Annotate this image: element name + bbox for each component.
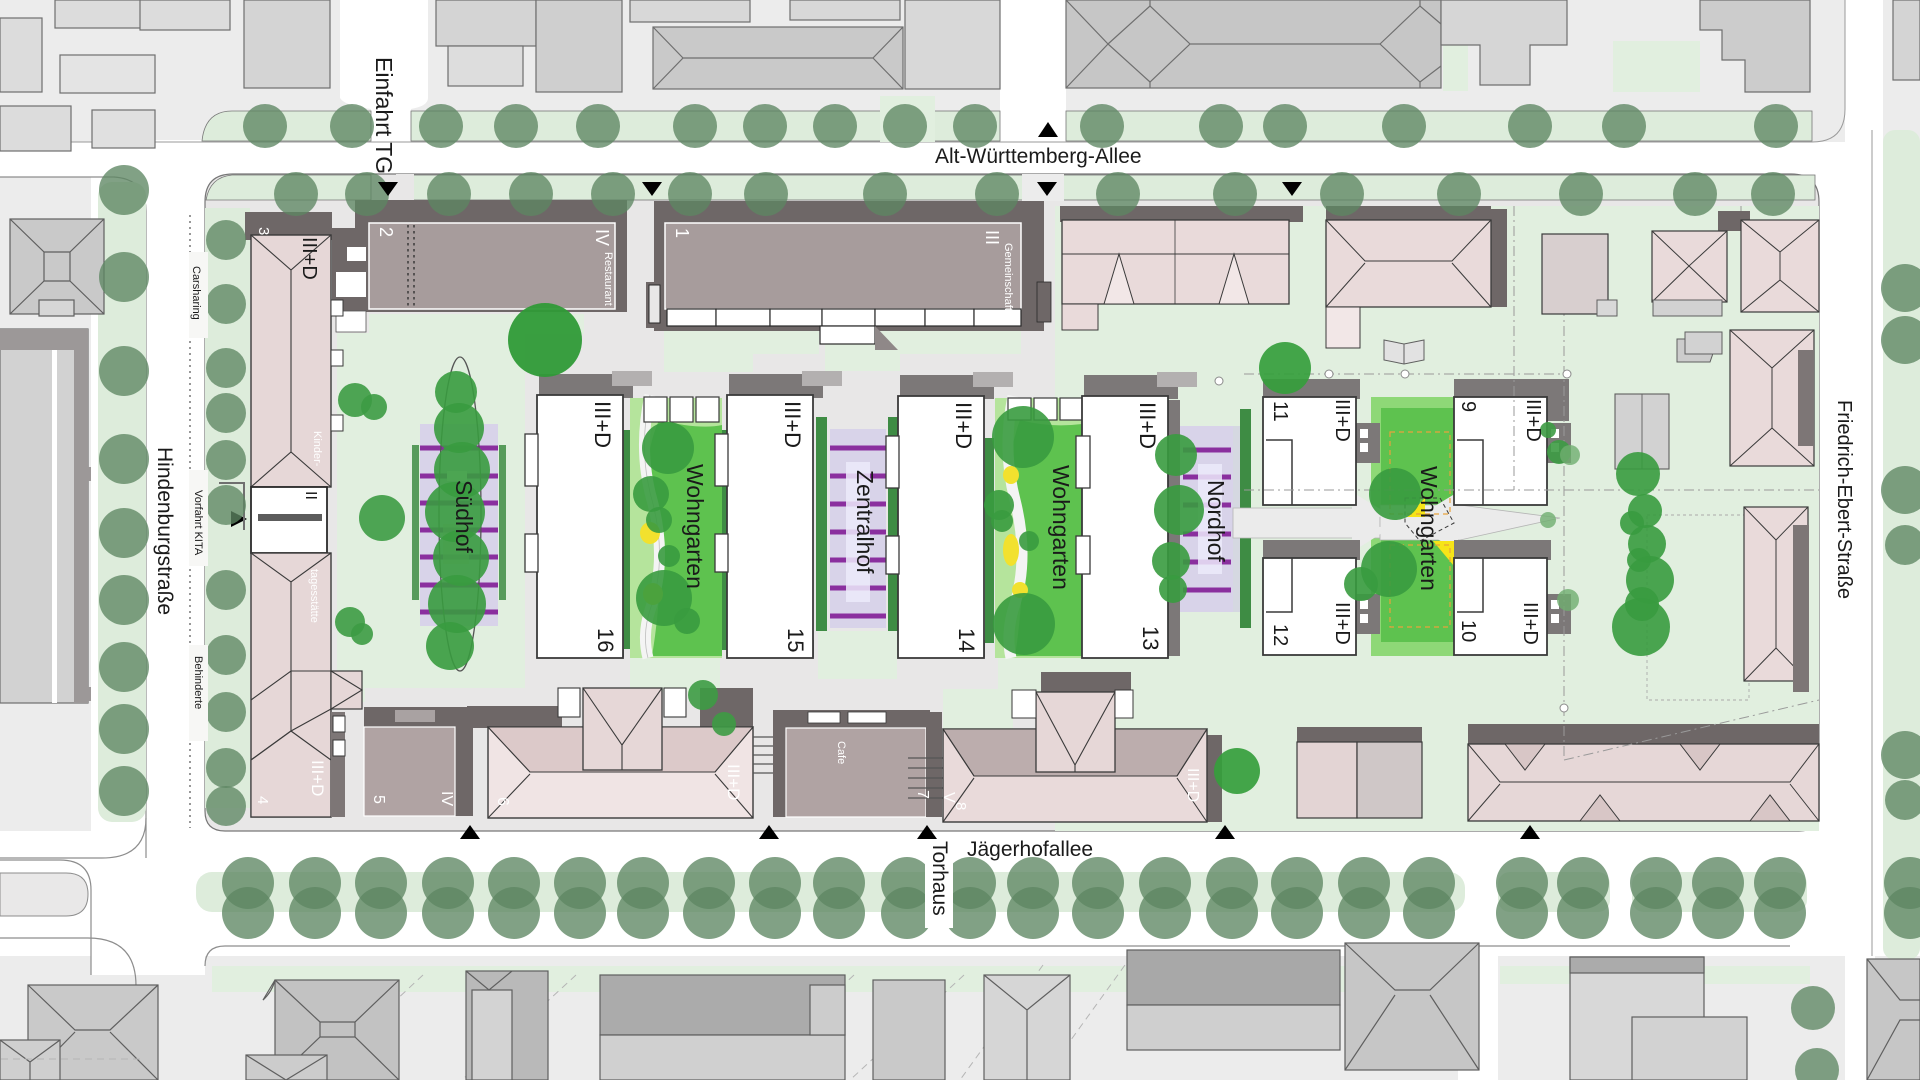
svg-text:Carsharing: Carsharing xyxy=(190,266,202,320)
svg-text:Cafe: Cafe xyxy=(835,741,847,764)
svg-text:III: III xyxy=(982,230,1002,245)
svg-text:Restaurant: Restaurant xyxy=(602,252,614,306)
svg-text:11: 11 xyxy=(1269,401,1291,422)
svg-text:Südhof: Südhof xyxy=(451,480,477,554)
svg-text:Einfahrt TG: Einfahrt TG xyxy=(371,57,397,174)
svg-text:2: 2 xyxy=(376,227,396,237)
svg-text:Kinder-: Kinder- xyxy=(311,431,323,467)
svg-text:6: 6 xyxy=(494,797,511,806)
svg-text:Nordhof: Nordhof xyxy=(1203,480,1229,562)
svg-text:IV: IV xyxy=(438,791,455,806)
svg-text:Wohngarten: Wohngarten xyxy=(1048,465,1074,590)
svg-text:10: 10 xyxy=(1457,620,1479,642)
svg-text:4: 4 xyxy=(254,796,271,804)
svg-text:7: 7 xyxy=(914,790,931,799)
svg-text:3: 3 xyxy=(255,227,272,235)
svg-text:tagesstätte: tagesstätte xyxy=(308,569,320,623)
svg-text:12: 12 xyxy=(1269,624,1291,646)
svg-text:IV: IV xyxy=(592,229,612,246)
svg-text:III+D: III+D xyxy=(1331,602,1353,645)
svg-text:III+D: III+D xyxy=(780,401,805,448)
svg-text:Alt-Württemberg-Allee: Alt-Württemberg-Allee xyxy=(935,145,1142,168)
svg-text:III+D: III+D xyxy=(308,760,327,796)
svg-text:Hindenburgstraße: Hindenburgstraße xyxy=(153,447,176,615)
svg-text:Vorfahrt KITA: Vorfahrt KITA xyxy=(192,490,204,556)
svg-text:Jägerhofallee: Jägerhofallee xyxy=(967,838,1093,861)
svg-text:III+D: III+D xyxy=(1522,399,1544,442)
svg-text:5: 5 xyxy=(370,795,387,804)
svg-text:Gemeinschaft: Gemeinschaft xyxy=(1002,243,1014,311)
svg-text:II: II xyxy=(302,491,319,500)
svg-text:Zentralhof: Zentralhof xyxy=(852,470,878,574)
svg-text:13: 13 xyxy=(1138,626,1163,650)
svg-text:III+D: III+D xyxy=(1135,402,1160,449)
svg-text:III+D: III+D xyxy=(951,402,976,449)
svg-text:16: 16 xyxy=(593,628,618,652)
svg-text:14: 14 xyxy=(954,628,979,652)
svg-text:III+D: III+D xyxy=(1331,399,1353,442)
svg-text:III+D: III+D xyxy=(1519,602,1541,645)
svg-text:Torhaus: Torhaus xyxy=(928,841,951,916)
svg-text:Wohngarten: Wohngarten xyxy=(682,464,708,589)
svg-text:9: 9 xyxy=(1457,401,1479,412)
svg-text:III+D: III+D xyxy=(298,237,320,280)
svg-text:8: 8 xyxy=(952,802,969,810)
svg-text:15: 15 xyxy=(783,628,808,652)
svg-text:1: 1 xyxy=(672,228,692,238)
svg-text:III+D: III+D xyxy=(1184,768,1201,802)
svg-text:III+D: III+D xyxy=(590,401,615,448)
svg-text:Friedrich-Ebert-Straße: Friedrich-Ebert-Straße xyxy=(1833,400,1855,599)
svg-text:Wohngarten: Wohngarten xyxy=(1416,466,1442,591)
svg-text:Behinderte: Behinderte xyxy=(192,656,204,709)
svg-text:III+D: III+D xyxy=(724,764,743,800)
